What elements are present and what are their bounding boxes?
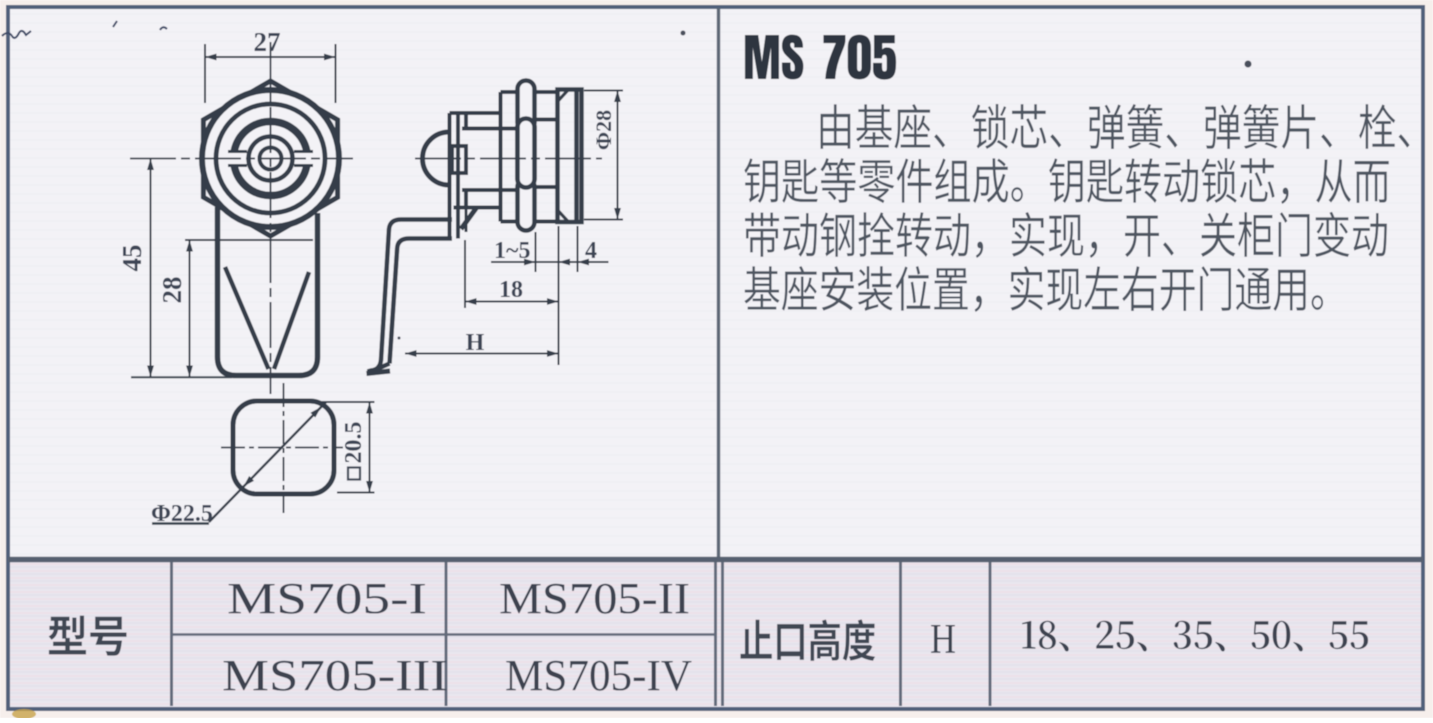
svg-text:MS705-IV: MS705-IV [505,651,692,700]
svg-text:45: 45 [117,245,147,272]
svg-text:27: 27 [254,27,281,57]
svg-text:1~5: 1~5 [494,238,530,264]
svg-text:MS705-III: MS705-III [222,651,448,700]
svg-text:MS705-II: MS705-II [499,574,690,623]
svg-text:H: H [930,617,956,663]
svg-text:Φ22.5: Φ22.5 [151,501,213,527]
svg-text:MS705-I: MS705-I [227,574,427,623]
svg-text:4: 4 [585,238,597,264]
svg-text:18: 18 [499,277,523,303]
svg-text:Φ28: Φ28 [591,110,616,150]
svg-text:28: 28 [157,277,187,304]
svg-text:20.5: 20.5 [341,422,367,464]
svg-text:H: H [466,330,485,356]
